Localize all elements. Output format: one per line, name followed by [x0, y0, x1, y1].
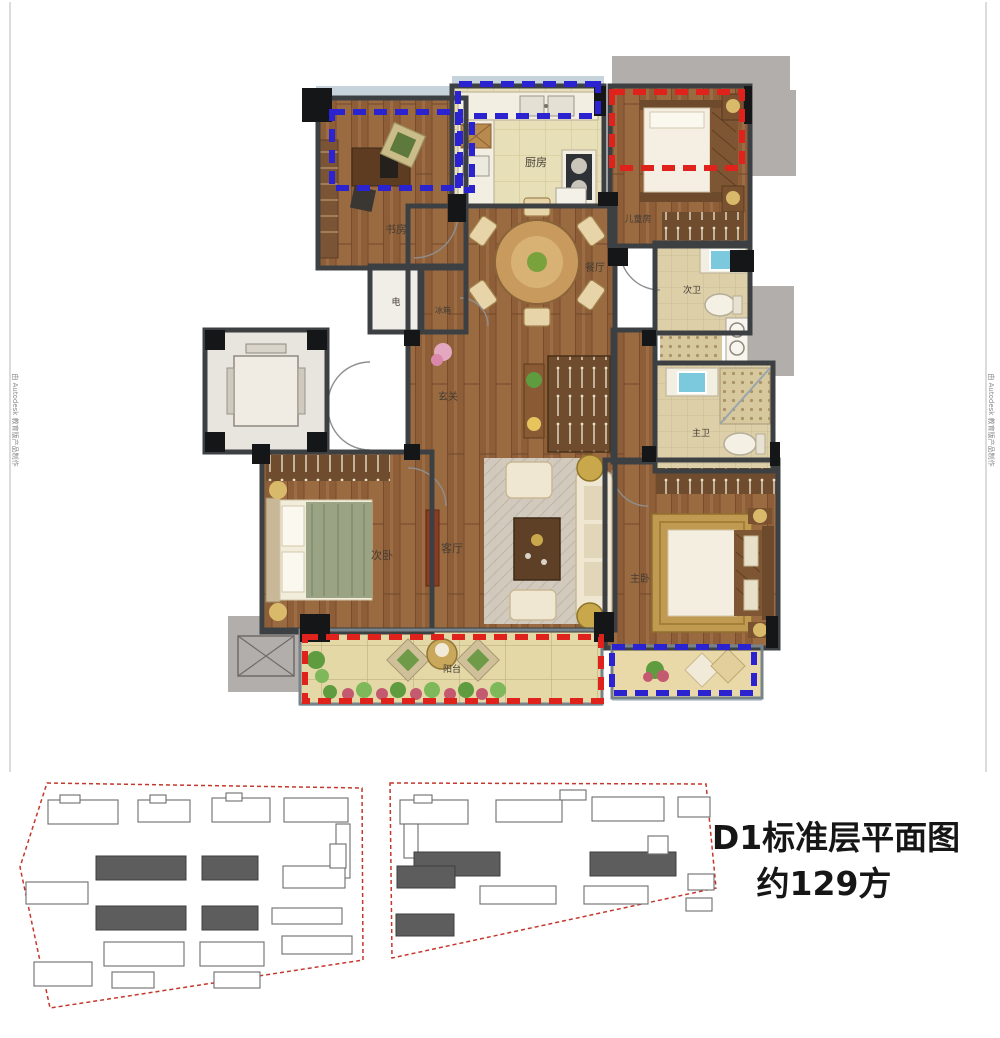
siteplan-left	[20, 783, 363, 1008]
room-label-foyer: 玄关	[438, 390, 458, 403]
master-furniture	[652, 468, 776, 638]
siteplan-right-buildings	[396, 790, 714, 936]
room-label-master-bath: 主卫	[692, 427, 710, 439]
plan-title: D1标准层平面图	[712, 818, 960, 857]
watermark-left: 由 Autodesk 教育版产品制作	[11, 373, 20, 466]
fridge-floor	[420, 266, 466, 332]
siteplan-left-buildings	[26, 793, 352, 988]
floorplan-page: 由 Autodesk 教育版产品制作 由 Autodesk 教育版产品制作	[0, 0, 1000, 1038]
title-block: D1标准层平面图 约129方	[712, 818, 960, 903]
room-label-elec: 电	[391, 296, 400, 308]
elevator	[227, 344, 305, 426]
room-label-kids: 儿童房	[624, 213, 651, 225]
room-label-dining: 餐厅	[585, 261, 605, 274]
room-label-fridge: 冰箱	[435, 305, 451, 315]
room-label-kitchen: 厨房	[525, 156, 547, 169]
room-label-bed2: 次卧	[371, 548, 393, 562]
room-label-living: 客厅	[441, 541, 463, 555]
corridor-floor	[613, 330, 655, 462]
living-furniture	[484, 455, 612, 629]
room-label-master: 主卧	[630, 572, 650, 585]
main-floorplan: 书房 厨房 儿童房 餐厅 电 冰箱 玄关 次卫 主卫 次卧 客厅 主卧 阳台	[205, 56, 796, 706]
room-label-study: 书房	[385, 223, 407, 236]
watermark-right: 由 Autodesk 教育版产品制作	[987, 373, 996, 466]
plan-area: 约129方	[757, 864, 892, 903]
floorplan-image: 由 Autodesk 教育版产品制作 由 Autodesk 教育版产品制作	[0, 0, 1000, 1038]
room-label-balcony: 阳台	[443, 663, 461, 675]
siteplan-right	[390, 783, 716, 958]
room-label-bath2: 次卫	[683, 284, 701, 296]
